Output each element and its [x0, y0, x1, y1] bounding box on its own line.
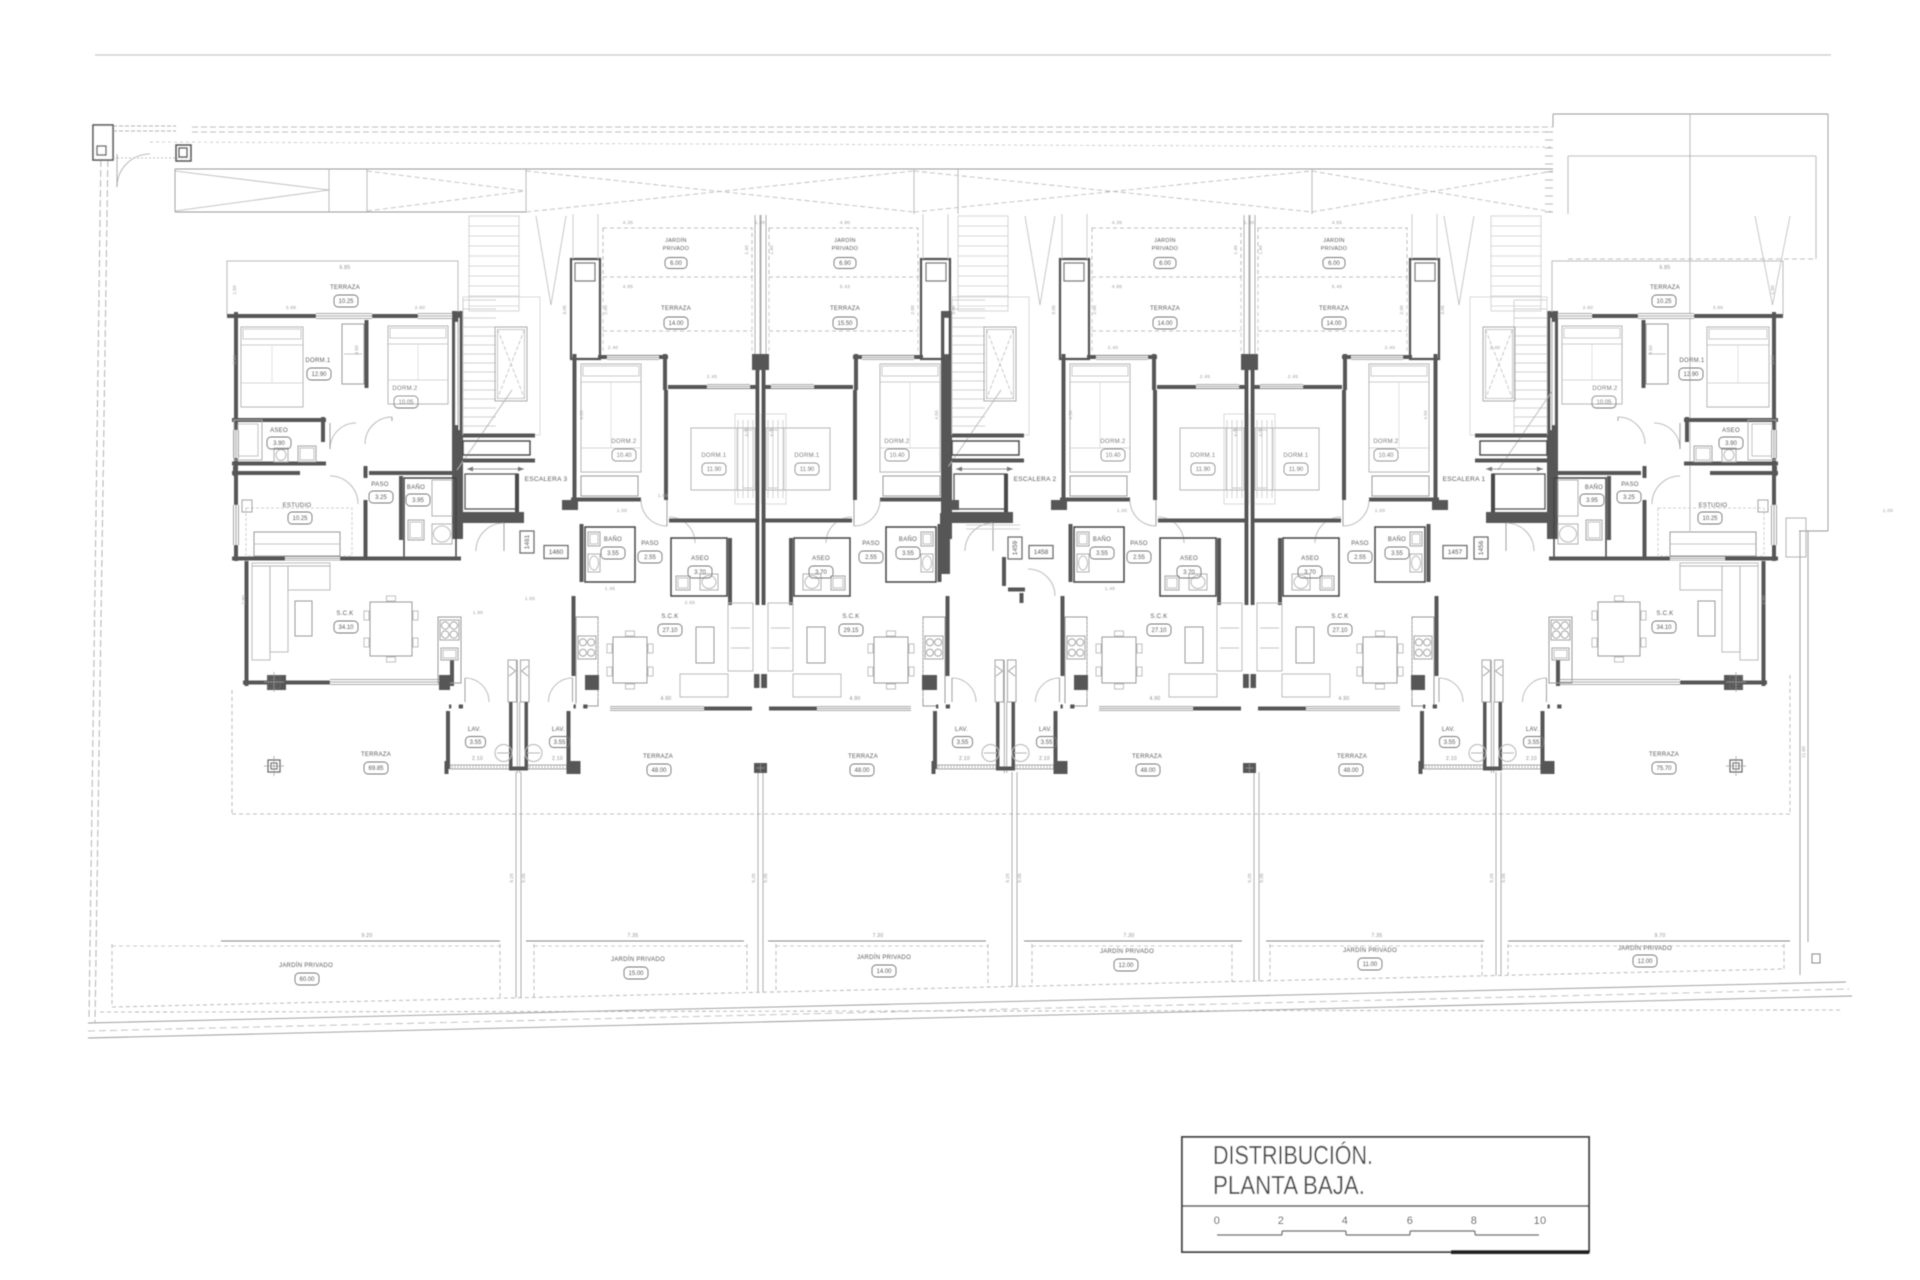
svg-text:ESTUDIO: ESTUDIO [1699, 503, 1728, 509]
svg-text:5.05: 5.05 [1501, 873, 1507, 883]
svg-text:3.86: 3.86 [1713, 305, 1724, 311]
svg-text:2: 2 [1278, 1215, 1284, 1227]
svg-text:4.00: 4.00 [769, 427, 775, 437]
svg-text:1.50: 1.50 [1770, 285, 1776, 295]
svg-text:5.05: 5.05 [763, 873, 769, 883]
svg-text:5.05: 5.05 [521, 873, 527, 883]
svg-text:0: 0 [1214, 1215, 1220, 1227]
svg-text:2.00: 2.00 [1399, 305, 1405, 315]
svg-text:11.90: 11.90 [800, 467, 815, 473]
svg-text:27.10: 27.10 [1332, 628, 1348, 634]
svg-text:48.00: 48.00 [1343, 768, 1359, 774]
svg-text:4.50: 4.50 [579, 410, 585, 420]
svg-text:11.00: 11.00 [1363, 962, 1378, 968]
svg-text:3.05: 3.05 [951, 305, 957, 315]
svg-text:1.88: 1.88 [658, 493, 669, 499]
svg-text:14.00: 14.00 [668, 321, 684, 327]
svg-text:4.50: 4.50 [934, 410, 940, 420]
svg-text:4.55: 4.55 [1332, 220, 1343, 226]
svg-text:BAÑO: BAÑO [899, 536, 917, 543]
svg-text:TERRAZA: TERRAZA [643, 754, 673, 760]
svg-text:2.10: 2.10 [1526, 756, 1537, 762]
svg-text:PASO: PASO [1130, 541, 1147, 547]
svg-text:ASEO: ASEO [1301, 556, 1319, 562]
svg-text:4.50: 4.50 [1648, 345, 1654, 355]
svg-text:2.40: 2.40 [1385, 345, 1396, 351]
svg-text:9.20: 9.20 [362, 933, 373, 939]
svg-text:10.25: 10.25 [338, 299, 354, 305]
svg-text:DORM.1: DORM.1 [701, 453, 726, 459]
svg-text:2.55: 2.55 [1133, 555, 1145, 561]
svg-text:75.70: 75.70 [1656, 766, 1672, 772]
svg-text:ASEO: ASEO [812, 556, 830, 562]
svg-text:TERRAZA: TERRAZA [848, 754, 878, 760]
svg-text:1.00: 1.00 [617, 508, 628, 514]
svg-text:48.00: 48.00 [651, 768, 667, 774]
svg-text:BAÑO: BAÑO [407, 484, 425, 491]
svg-text:1.40: 1.40 [769, 245, 775, 255]
svg-text:12.00: 12.00 [1118, 963, 1134, 969]
svg-text:2.60: 2.60 [415, 305, 426, 311]
svg-text:TERRAZA: TERRAZA [830, 306, 860, 312]
svg-text:JARDÍN: JARDÍN [665, 237, 687, 244]
svg-text:7.30: 7.30 [873, 933, 884, 939]
svg-text:11.90: 11.90 [1196, 467, 1211, 473]
svg-text:2.90: 2.90 [241, 595, 247, 605]
svg-text:14.00: 14.00 [1326, 321, 1342, 327]
svg-text:6: 6 [1407, 1215, 1413, 1227]
svg-text:4.00: 4.00 [1233, 427, 1239, 437]
svg-text:6.85: 6.85 [1660, 265, 1671, 271]
svg-text:TERRAZA: TERRAZA [1150, 306, 1180, 312]
svg-text:3.55: 3.55 [1528, 740, 1540, 746]
svg-text:PLANTA BAJA.: PLANTA BAJA. [1213, 1170, 1365, 1200]
svg-text:JARDÍN PRIVADO: JARDÍN PRIVADO [611, 956, 665, 963]
svg-text:4: 4 [1342, 1215, 1348, 1227]
svg-text:1.50: 1.50 [232, 285, 238, 295]
svg-text:PRIVADO: PRIVADO [1152, 246, 1179, 252]
svg-text:BAÑO: BAÑO [1585, 484, 1603, 491]
svg-text:TERRAZA: TERRAZA [1649, 752, 1679, 758]
svg-text:PASO: PASO [1621, 482, 1638, 488]
svg-text:11.90: 11.90 [707, 467, 722, 473]
svg-text:PASO: PASO [641, 541, 658, 547]
svg-text:PRIVADO: PRIVADO [663, 246, 690, 252]
svg-text:1458: 1458 [1034, 549, 1049, 556]
svg-text:ASEO: ASEO [1180, 556, 1198, 562]
svg-text:LAV.: LAV. [552, 727, 565, 733]
svg-text:3.55: 3.55 [902, 551, 914, 557]
svg-text:6.00: 6.00 [1328, 261, 1340, 267]
svg-text:3.90: 3.90 [232, 355, 238, 365]
svg-text:8: 8 [1471, 1215, 1477, 1227]
svg-text:3.90: 3.90 [1725, 441, 1737, 447]
svg-text:2.10: 2.10 [1039, 756, 1050, 762]
svg-text:2.10: 2.10 [472, 756, 483, 762]
svg-text:2.45: 2.45 [1288, 374, 1299, 380]
svg-text:3.05: 3.05 [1051, 305, 1057, 315]
svg-text:12.90: 12.90 [311, 372, 327, 378]
svg-text:4.50: 4.50 [354, 345, 360, 355]
svg-text:11.60: 11.60 [1801, 746, 1807, 758]
svg-text:1.45: 1.45 [1105, 586, 1116, 592]
svg-text:7.30: 7.30 [1124, 933, 1135, 939]
svg-text:1.85: 1.85 [473, 610, 484, 616]
svg-text:4.50: 4.50 [1423, 410, 1429, 420]
svg-text:LAV.: LAV. [468, 727, 481, 733]
svg-text:JARDÍN: JARDÍN [1323, 237, 1345, 244]
svg-text:2.90: 2.90 [1761, 595, 1767, 605]
svg-text:TERRAZA: TERRAZA [361, 752, 391, 758]
svg-text:3.55: 3.55 [1444, 740, 1456, 746]
svg-text:3.70: 3.70 [1183, 570, 1195, 576]
svg-text:10.40: 10.40 [1105, 453, 1121, 459]
svg-text:3.86: 3.86 [286, 305, 297, 311]
svg-text:10.25: 10.25 [1702, 516, 1718, 522]
svg-text:ASEO: ASEO [1722, 428, 1740, 434]
svg-text:3.25: 3.25 [375, 495, 387, 501]
svg-text:6.00: 6.00 [1159, 261, 1171, 267]
svg-text:JARDÍN: JARDÍN [834, 237, 856, 244]
svg-text:TERRAZA: TERRAZA [1132, 754, 1162, 760]
svg-text:3.55: 3.55 [470, 740, 482, 746]
svg-text:2.45: 2.45 [707, 374, 718, 380]
svg-text:10: 10 [1534, 1215, 1547, 1227]
svg-text:4.50: 4.50 [1068, 410, 1074, 420]
svg-text:PASO: PASO [1351, 541, 1368, 547]
svg-text:1.00: 1.00 [1883, 508, 1894, 514]
svg-text:5.05: 5.05 [1017, 873, 1023, 883]
svg-text:10.25: 10.25 [1656, 299, 1672, 305]
svg-text:BAÑO: BAÑO [1093, 536, 1111, 543]
svg-text:S.C.K: S.C.K [1656, 611, 1673, 617]
svg-text:S.C.K: S.C.K [661, 614, 678, 620]
svg-text:TERRAZA: TERRAZA [1337, 754, 1367, 760]
svg-text:60.00: 60.00 [299, 977, 315, 983]
svg-text:JARDÍN PRIVADO: JARDÍN PRIVADO [857, 954, 911, 961]
svg-text:5.25: 5.25 [1247, 873, 1253, 883]
svg-text:10.40: 10.40 [889, 453, 905, 459]
svg-text:DORM.2: DORM.2 [1100, 439, 1125, 445]
svg-text:5.43: 5.43 [840, 284, 851, 290]
svg-text:2.40: 2.40 [1490, 345, 1501, 351]
svg-text:ESTUDIO: ESTUDIO [283, 503, 312, 509]
svg-text:6.00: 6.00 [670, 261, 682, 267]
svg-text:3.55: 3.55 [957, 740, 969, 746]
svg-text:PASO: PASO [371, 482, 388, 488]
svg-text:7.35: 7.35 [1372, 933, 1383, 939]
svg-text:11.90: 11.90 [1289, 467, 1304, 473]
svg-text:27.10: 27.10 [1151, 628, 1167, 634]
svg-text:2.40: 2.40 [1108, 345, 1119, 351]
svg-text:ESCALERA 1: ESCALERA 1 [1443, 476, 1486, 483]
svg-text:6.85: 6.85 [340, 265, 351, 271]
svg-text:S.C.K: S.C.K [1150, 614, 1167, 620]
svg-text:1457: 1457 [1448, 549, 1463, 556]
svg-text:4.35: 4.35 [1112, 220, 1123, 226]
svg-text:3.70: 3.70 [1304, 570, 1316, 576]
svg-text:3.05: 3.05 [562, 305, 568, 315]
svg-text:S.C.K: S.C.K [336, 611, 353, 617]
svg-text:15.50: 15.50 [837, 321, 853, 327]
svg-text:PRIVADO: PRIVADO [832, 246, 859, 252]
svg-text:TERRAZA: TERRAZA [330, 285, 360, 291]
svg-text:2.55: 2.55 [1354, 555, 1366, 561]
svg-text:3.55: 3.55 [1096, 551, 1108, 557]
svg-text:34.10: 34.10 [1656, 625, 1672, 631]
svg-text:4.85: 4.85 [623, 284, 634, 290]
svg-text:10.40: 10.40 [616, 453, 632, 459]
svg-text:5.25: 5.25 [1005, 873, 1011, 883]
svg-text:2.55: 2.55 [865, 555, 877, 561]
svg-text:DORM.2: DORM.2 [1373, 439, 1398, 445]
svg-text:TERRAZA: TERRAZA [1319, 306, 1349, 312]
svg-text:1461: 1461 [524, 534, 531, 549]
svg-text:JARDÍN: JARDÍN [1154, 237, 1176, 244]
svg-text:PRIVADO: PRIVADO [1321, 246, 1348, 252]
svg-text:3.55: 3.55 [607, 551, 619, 557]
svg-text:5.25: 5.25 [509, 873, 515, 883]
svg-text:2.10: 2.10 [959, 756, 970, 762]
svg-text:1.00: 1.00 [1117, 508, 1128, 514]
svg-text:3.25: 3.25 [1623, 495, 1635, 501]
svg-text:1.40: 1.40 [1233, 245, 1239, 255]
svg-text:JARDÍN PRIVADO: JARDÍN PRIVADO [1343, 947, 1397, 954]
svg-text:5.25: 5.25 [1489, 873, 1495, 883]
svg-text:1.65: 1.65 [525, 596, 536, 602]
svg-text:3.55: 3.55 [1391, 551, 1403, 557]
svg-text:1.40: 1.40 [1258, 245, 1264, 255]
svg-text:TERRAZA: TERRAZA [661, 306, 691, 312]
svg-text:4.35: 4.35 [623, 220, 634, 226]
svg-text:3.90: 3.90 [1770, 355, 1776, 365]
svg-text:DORM.1: DORM.1 [305, 358, 330, 364]
svg-text:DORM.2: DORM.2 [1592, 386, 1617, 392]
svg-text:3.90: 3.90 [273, 441, 285, 447]
svg-text:DORM.2: DORM.2 [884, 439, 909, 445]
svg-text:2.65: 2.65 [685, 600, 696, 606]
svg-text:4.90: 4.90 [1150, 696, 1161, 702]
svg-text:TERRAZA: TERRAZA [1650, 285, 1680, 291]
svg-text:JARDÍN PRIVADO: JARDÍN PRIVADO [279, 962, 333, 969]
svg-text:2.55: 2.55 [644, 555, 656, 561]
svg-text:12.00: 12.00 [1637, 959, 1653, 965]
svg-text:10.05: 10.05 [398, 400, 414, 406]
svg-text:1460: 1460 [549, 549, 564, 556]
svg-text:ASEO: ASEO [691, 556, 709, 562]
svg-text:5.25: 5.25 [751, 873, 757, 883]
svg-text:5.05: 5.05 [1259, 873, 1265, 883]
svg-text:5.45: 5.45 [1332, 284, 1343, 290]
svg-text:1.40: 1.40 [744, 245, 750, 255]
svg-text:9.70: 9.70 [1655, 933, 1666, 939]
svg-text:2.00: 2.00 [910, 305, 916, 315]
svg-text:DISTRIBUCIÓN.: DISTRIBUCIÓN. [1213, 1140, 1373, 1170]
svg-text:DORM.2: DORM.2 [392, 386, 417, 392]
svg-text:LAV.: LAV. [1526, 727, 1539, 733]
svg-text:29.15: 29.15 [843, 628, 859, 634]
svg-text:4.90: 4.90 [661, 696, 672, 702]
svg-text:48.00: 48.00 [854, 768, 870, 774]
svg-text:10.40: 10.40 [1378, 453, 1394, 459]
svg-text:48.00: 48.00 [1140, 768, 1156, 774]
svg-text:PASO: PASO [862, 541, 879, 547]
svg-text:6.90: 6.90 [839, 261, 851, 267]
svg-text:BAÑO: BAÑO [604, 536, 622, 543]
svg-text:12.90: 12.90 [1683, 372, 1699, 378]
svg-text:4.00: 4.00 [744, 427, 750, 437]
svg-text:S.C.K: S.C.K [1331, 614, 1348, 620]
svg-text:34.10: 34.10 [338, 625, 354, 631]
svg-text:1.30: 1.30 [1244, 220, 1255, 226]
svg-text:1.00: 1.00 [1375, 508, 1386, 514]
svg-text:2.40: 2.40 [608, 345, 619, 351]
svg-text:4.90: 4.90 [850, 696, 861, 702]
svg-text:1456: 1456 [1478, 540, 1485, 555]
svg-text:1.30: 1.30 [755, 220, 766, 226]
svg-text:4.85: 4.85 [1112, 284, 1123, 290]
svg-text:4.90: 4.90 [840, 220, 851, 226]
svg-text:2.10: 2.10 [1446, 756, 1457, 762]
svg-text:LAV.: LAV. [955, 727, 968, 733]
svg-text:DORM.2: DORM.2 [611, 439, 636, 445]
svg-text:27.10: 27.10 [662, 628, 678, 634]
svg-text:JARDÍN PRIVADO: JARDÍN PRIVADO [1618, 945, 1672, 952]
svg-text:2.45: 2.45 [1200, 374, 1211, 380]
svg-text:ASEO: ASEO [270, 428, 288, 434]
svg-text:3.70: 3.70 [815, 570, 827, 576]
svg-text:1459: 1459 [1012, 540, 1019, 555]
svg-text:2.00: 2.00 [1092, 305, 1098, 315]
svg-text:69.85: 69.85 [368, 766, 384, 772]
svg-text:LAV.: LAV. [1039, 727, 1052, 733]
svg-text:7.35: 7.35 [628, 933, 639, 939]
svg-text:DORM.1: DORM.1 [794, 453, 819, 459]
svg-text:2.60: 2.60 [1583, 305, 1594, 311]
svg-text:ESCALERA 3: ESCALERA 3 [525, 476, 568, 483]
svg-text:14.00: 14.00 [1157, 321, 1173, 327]
svg-text:DORM.1: DORM.1 [1283, 453, 1308, 459]
svg-text:3.70: 3.70 [694, 570, 706, 576]
svg-text:JARDÍN PRIVADO: JARDÍN PRIVADO [1100, 948, 1154, 955]
svg-text:10.25: 10.25 [292, 516, 308, 522]
svg-text:14.00: 14.00 [876, 969, 892, 975]
svg-text:3.95: 3.95 [1586, 498, 1598, 504]
svg-text:2.10: 2.10 [552, 756, 563, 762]
svg-text:3.95: 3.95 [412, 498, 424, 504]
svg-text:3.55: 3.55 [554, 740, 566, 746]
svg-text:DORM.1: DORM.1 [1679, 358, 1704, 364]
svg-text:3.05: 3.05 [1440, 305, 1446, 315]
svg-text:ESCALERA 2: ESCALERA 2 [1014, 476, 1057, 483]
svg-text:DORM.1: DORM.1 [1190, 453, 1215, 459]
svg-text:LAV.: LAV. [1442, 727, 1455, 733]
svg-text:15.00: 15.00 [628, 971, 644, 977]
svg-text:2.00: 2.00 [603, 305, 609, 315]
svg-text:4.90: 4.90 [1339, 696, 1350, 702]
svg-text:1.45: 1.45 [605, 586, 616, 592]
svg-text:3.55: 3.55 [1041, 740, 1053, 746]
svg-text:4.00: 4.00 [1258, 427, 1264, 437]
svg-text:10.05: 10.05 [1596, 400, 1612, 406]
svg-text:BAÑO: BAÑO [1388, 536, 1406, 543]
svg-text:S.C.K: S.C.K [842, 614, 859, 620]
